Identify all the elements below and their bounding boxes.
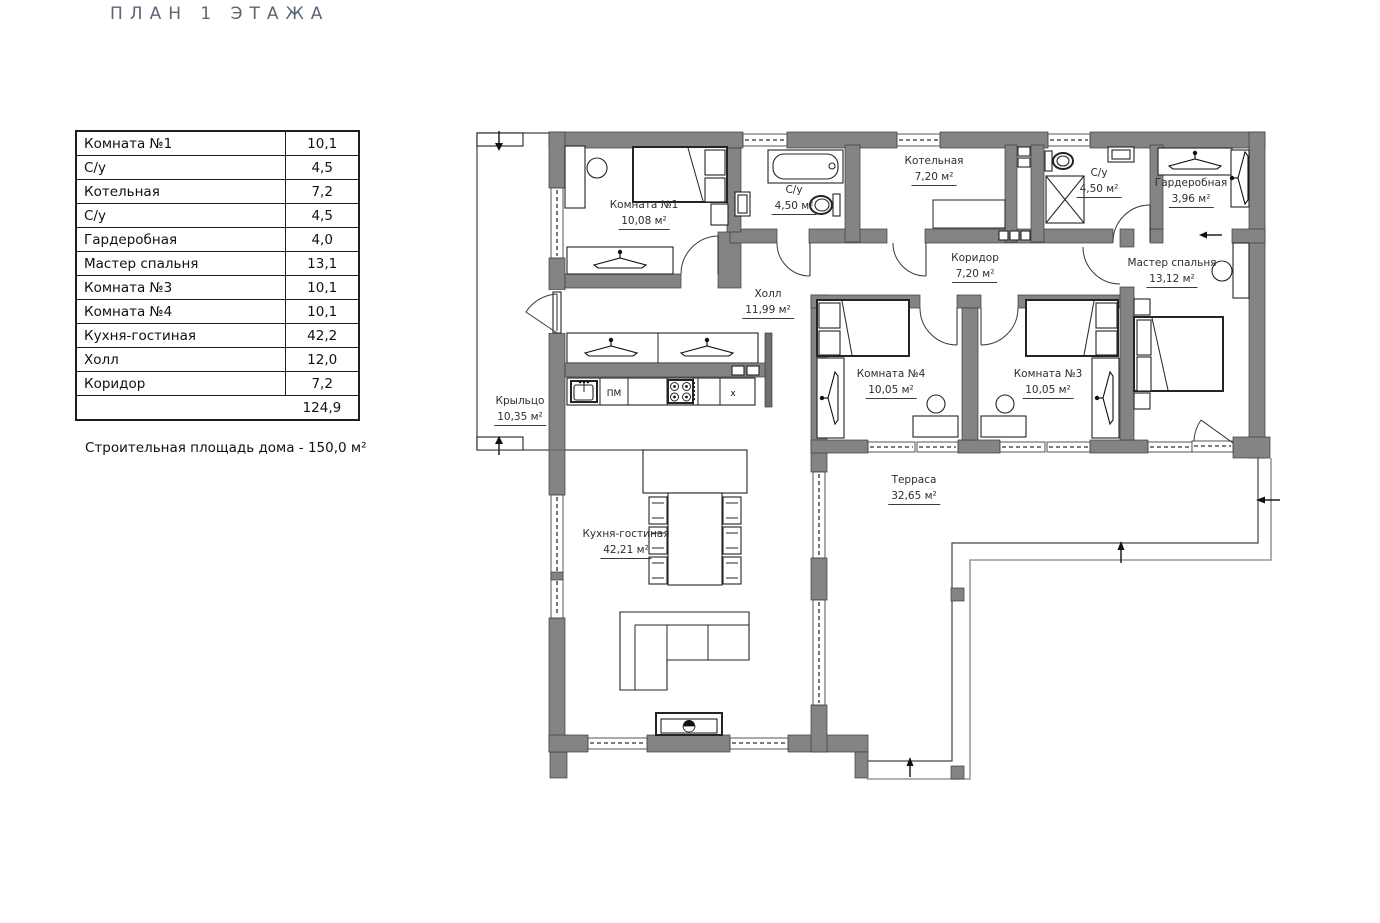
nightstand — [1134, 299, 1150, 315]
terrace-post — [951, 588, 964, 601]
room-label-holl: Холл 11,99 м² — [742, 288, 794, 319]
room-label-kuhnya: Кухня-гостиная 42,21 м² — [582, 528, 669, 559]
room-label-master: Мастер спальня 13,12 м² — [1128, 257, 1217, 288]
fridge-label: х — [730, 389, 736, 399]
room-label-kryltso: Крыльцо 10,35 м² — [494, 395, 546, 426]
room-label-su1: С/у 4,50 м² — [772, 184, 817, 215]
kitchen-sink — [571, 381, 597, 402]
sofa — [620, 612, 749, 690]
room-label-koridor: Коридор 7,20 м² — [951, 252, 999, 283]
chair — [587, 158, 607, 178]
room-label-komnata1: Комната №1 10,08 м² — [610, 199, 679, 230]
terrace-arrow-right — [1256, 497, 1280, 504]
terrace-outline — [867, 458, 1280, 779]
nightstand — [711, 204, 728, 225]
room-label-su2: С/у 4,50 м² — [1077, 167, 1122, 198]
dining-table — [668, 493, 722, 585]
desk — [913, 416, 958, 437]
boiler-bench — [933, 200, 1005, 228]
hall-wardrobe — [567, 333, 758, 363]
desk — [1233, 243, 1249, 298]
chair — [996, 395, 1014, 413]
terrace-arrow-bottom — [907, 757, 914, 777]
dishwasher-label: ПМ — [607, 389, 622, 399]
floor-plan-page: ПЛАН 1 ЭТАЖА Комната №110,1 С/у4,5 Котел… — [0, 0, 1380, 923]
desk — [981, 416, 1026, 437]
wardrobe-opening-arrow — [1199, 232, 1222, 239]
toilet — [1045, 151, 1073, 171]
room-label-kotelnaya: Котельная 7,20 м² — [905, 155, 964, 186]
chair — [927, 395, 945, 413]
desk — [565, 146, 585, 208]
dining-living-furniture — [477, 450, 749, 735]
room-label-komnata3: Комната №3 10,05 м² — [1014, 368, 1083, 399]
terrace-post — [951, 766, 964, 779]
kitchen-block: ПМ х — [565, 333, 772, 407]
nightstand — [1134, 393, 1150, 409]
room-label-komnata4: Комната №4 10,05 м² — [857, 368, 926, 399]
floor-plan-drawing: .wall{fill:#848484;stroke:#3c3c3c;stroke… — [0, 0, 1380, 923]
tv-stand — [656, 713, 722, 735]
room-label-garderobnaya: Гардеробная 3,96 м² — [1155, 177, 1227, 208]
room-label-terrasa: Терраса 32,65 м² — [888, 474, 940, 505]
stove — [668, 380, 695, 403]
kitchen-island — [643, 450, 747, 493]
